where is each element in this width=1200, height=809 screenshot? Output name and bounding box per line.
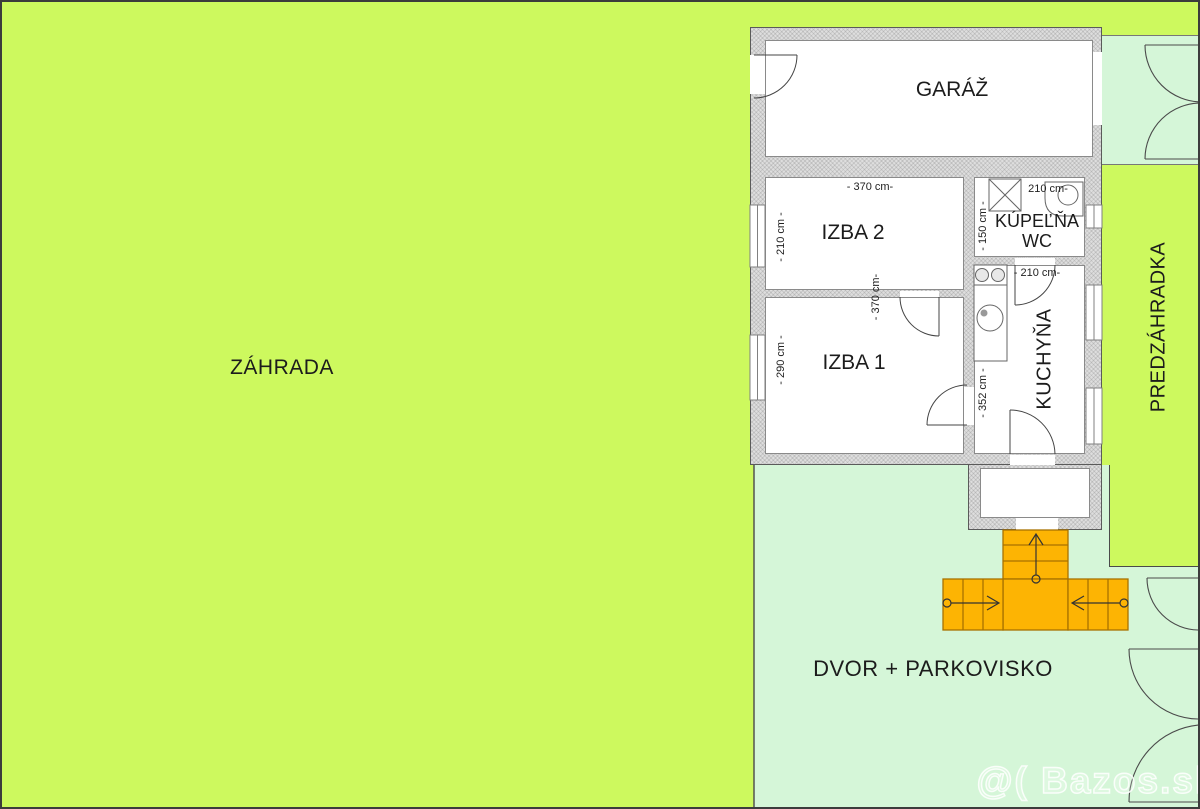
label-zahrada: ZÁHRADA: [230, 356, 334, 380]
dim-kupelna-height: - 150 cm -: [977, 201, 989, 251]
dim-izba2-height: - 210 cm -: [775, 212, 787, 262]
label-dvor-parkovisko: DVOR + PARKOVISKO: [813, 656, 1053, 682]
dim-stredna-height: - 370 cm-: [870, 274, 882, 320]
label-kupelna-wc: KÚPEĽŇA WC: [995, 211, 1079, 251]
dim-izba1-height: - 290 cm -: [775, 335, 787, 385]
floor-plan-canvas: ZÁHRADA PREDZÁHRADKA DVOR + PARKOVISKO G…: [0, 0, 1200, 809]
label-kupelna-line2: WC: [1022, 231, 1052, 251]
label-predzahradka: PREDZÁHRADKA: [1148, 242, 1171, 412]
label-kupelna-line1: KÚPEĽŇA: [995, 211, 1079, 231]
kitchen-sink-icon: [974, 285, 1007, 361]
dim-kuchyna-width: - 210 cm-: [1014, 267, 1060, 279]
gate-arcs: [1129, 45, 1200, 802]
label-garaz: GARÁŽ: [916, 78, 988, 102]
label-izba1: IZBA 1: [822, 351, 885, 375]
dim-izba2-width: - 370 cm-: [847, 181, 893, 193]
label-kuchyna: KUCHYŇA: [1034, 308, 1057, 409]
bazos-watermark: @( Bazos.sk: [976, 760, 1200, 802]
shower-icon: [989, 179, 1021, 211]
plan-linework: [2, 2, 1200, 809]
label-izba2: IZBA 2: [821, 221, 884, 245]
cooktop-icon: [974, 265, 1007, 285]
door-swing-arcs: [754, 55, 1055, 454]
dim-kuchyna-height: - 352 cm -: [977, 368, 989, 418]
dim-kupelna-width: 210 cm-: [1028, 183, 1068, 195]
